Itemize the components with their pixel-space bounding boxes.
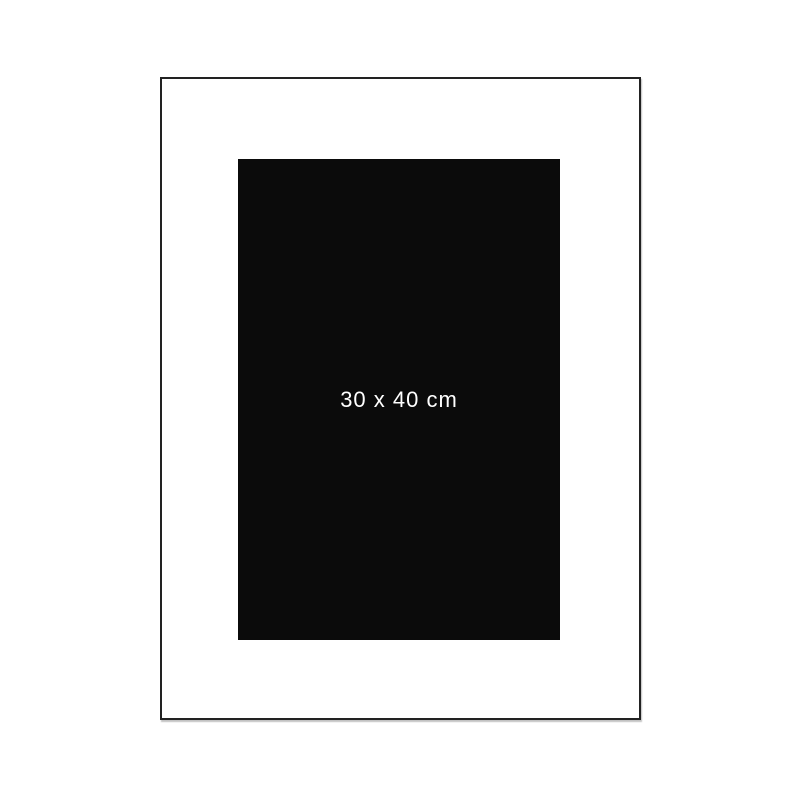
artwork-size-label: 30 x 40 cm	[340, 387, 458, 413]
mat-frame-outline: 30 x 40 cm	[160, 77, 641, 720]
diagram-canvas: 5 cm 5 cm 30 x 40 cm	[0, 0, 800, 800]
artwork-rectangle: 30 x 40 cm	[238, 159, 560, 640]
